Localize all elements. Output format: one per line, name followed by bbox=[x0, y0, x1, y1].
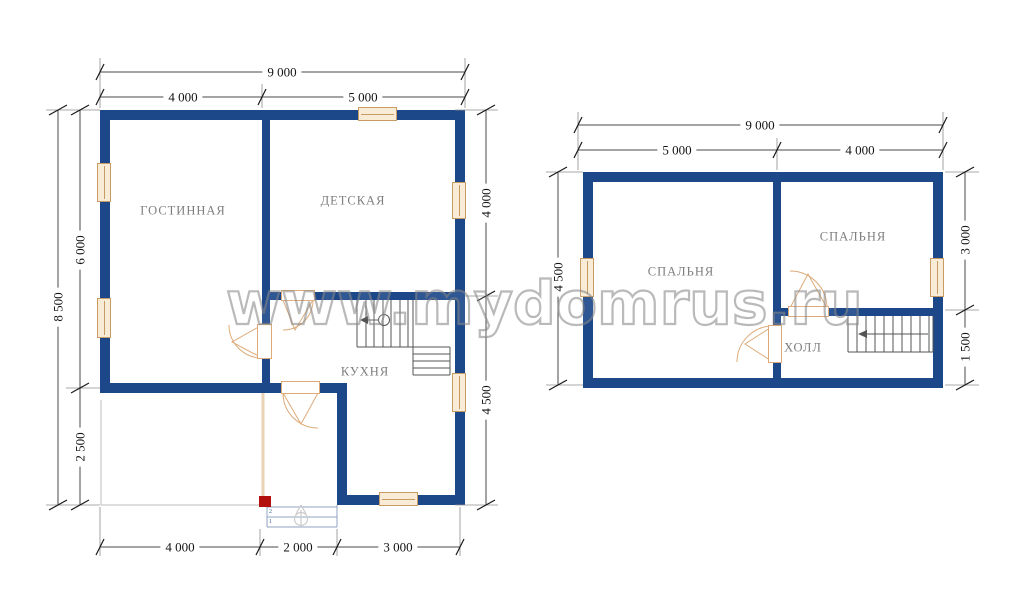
room-label-hall: ХОЛЛ bbox=[784, 341, 822, 356]
dim-label-top-right: 4 000 bbox=[840, 143, 879, 158]
dim-label-bottom-mid: 2 000 bbox=[278, 540, 317, 555]
watermark: www.mydomrus.ru bbox=[226, 272, 863, 336]
room-label-bedroom-right: СПАЛЬНЯ bbox=[820, 230, 886, 245]
window-symbol bbox=[930, 258, 944, 297]
window-symbol bbox=[97, 298, 111, 338]
dim-label-left-total: 8 500 bbox=[51, 287, 66, 326]
dim-label-top-right: 5 000 bbox=[343, 90, 382, 105]
window-symbol bbox=[452, 373, 466, 412]
dim-label-bottom-right: 3 000 bbox=[378, 540, 417, 555]
dim-label-left-lower: 2 500 bbox=[73, 427, 88, 466]
room-label-kitchen: КУХНЯ bbox=[341, 365, 389, 380]
dim-label-top-left: 4 000 bbox=[163, 90, 202, 105]
window-symbol bbox=[97, 163, 111, 202]
second-floor-dimension-lines bbox=[558, 125, 965, 385]
entry-steps-symbol bbox=[267, 505, 337, 527]
room-label-kids-room: ДЕТСКАЯ bbox=[321, 194, 386, 209]
floor-plans-canvas: ГОСТИННАЯ ДЕТСКАЯ КУХНЯ 2 1 9 000 4 000 … bbox=[0, 0, 1024, 616]
second-floor-extension-lines bbox=[546, 112, 979, 385]
porch-boundary-lines bbox=[101, 400, 259, 505]
dim-label-top-total: 9 000 bbox=[740, 118, 779, 133]
dim-label-bottom-left: 4 000 bbox=[160, 540, 199, 555]
second-floor-dimension-ticks bbox=[549, 117, 974, 390]
window-symbol bbox=[379, 492, 418, 506]
dim-label-right-upper: 3 000 bbox=[958, 220, 973, 259]
red-corner-marker bbox=[259, 496, 271, 507]
step-label-1: 1 bbox=[269, 519, 272, 525]
door-symbol bbox=[281, 381, 320, 394]
dim-label-top-total: 9 000 bbox=[262, 65, 301, 80]
window-symbol bbox=[452, 182, 466, 219]
dim-label-right-lower: 1 500 bbox=[958, 327, 973, 366]
dim-label-right-upper: 4 000 bbox=[479, 183, 494, 222]
step-label-2: 2 bbox=[269, 509, 272, 515]
dim-label-right-lower: 4 500 bbox=[479, 380, 494, 419]
dim-label-top-left: 5 000 bbox=[657, 143, 696, 158]
window-symbol bbox=[358, 107, 397, 121]
room-label-living-room: ГОСТИННАЯ bbox=[140, 204, 226, 219]
dim-label-left-upper: 6 000 bbox=[73, 230, 88, 269]
entry-direction-arrow-icon bbox=[295, 505, 308, 526]
